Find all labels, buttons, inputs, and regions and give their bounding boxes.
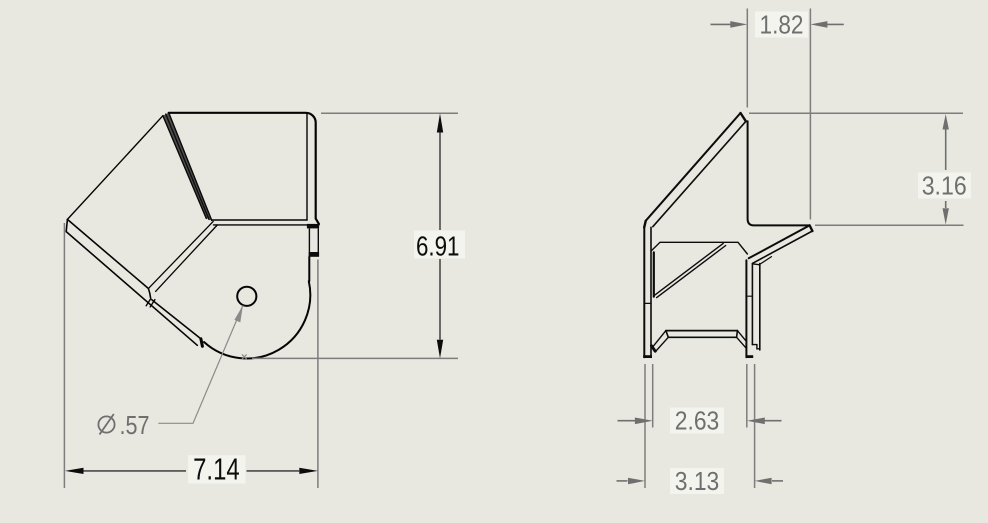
- svg-text:3.16: 3.16: [922, 170, 967, 200]
- svg-text:1.82: 1.82: [760, 9, 804, 39]
- svg-text:6.91: 6.91: [416, 231, 460, 262]
- svg-text:.57: .57: [120, 410, 150, 440]
- svg-text:3.13: 3.13: [675, 466, 720, 496]
- svg-text:2.63: 2.63: [675, 406, 720, 436]
- svg-text:7.14: 7.14: [193, 452, 240, 487]
